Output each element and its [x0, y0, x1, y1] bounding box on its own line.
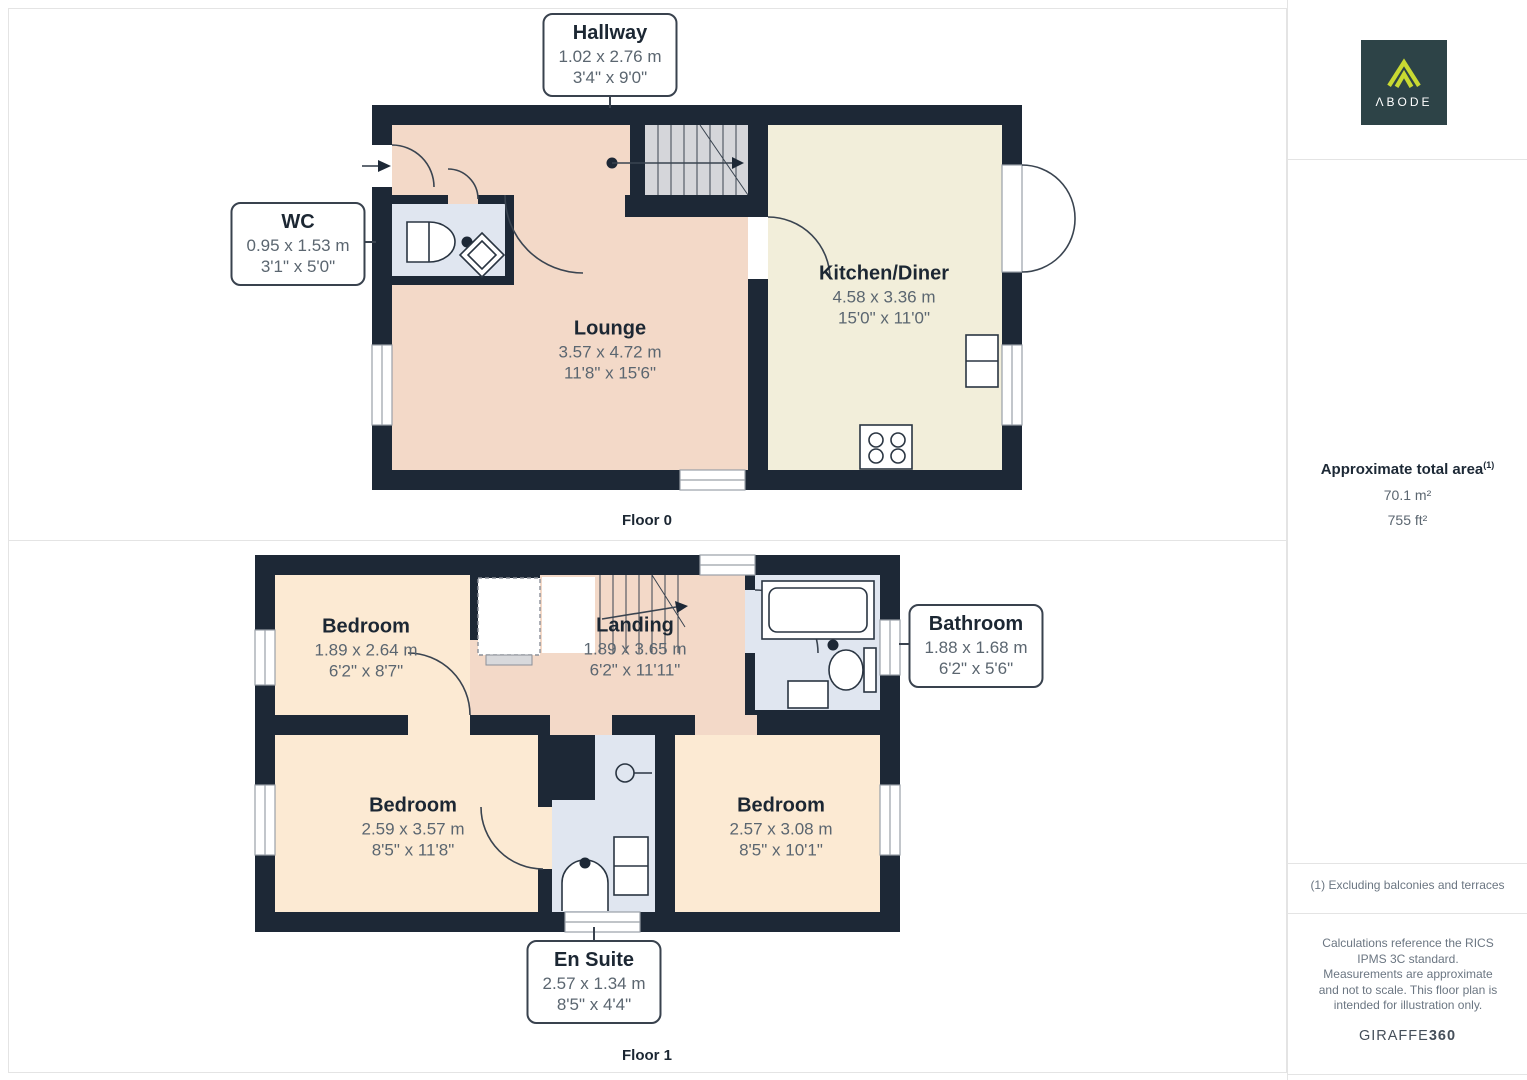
giraffe-360-text: 360 — [1429, 1028, 1456, 1044]
bathroom-sink-icon — [788, 681, 828, 708]
room-name: En Suite — [542, 948, 645, 973]
room-name: Hallway — [558, 21, 661, 46]
total-area-superscript: (1) — [1483, 460, 1494, 470]
landing-top-window — [700, 555, 755, 575]
kitchen-window-right — [1002, 345, 1022, 425]
closet — [478, 578, 540, 665]
floor0-label: Floor 0 — [622, 512, 672, 529]
sidebar-divider-4 — [1288, 1074, 1527, 1075]
room-name: Bedroom — [314, 614, 417, 639]
floor-divider-line — [8, 540, 1286, 541]
room-dim-imperial: 15'0" x 11'0" — [819, 308, 949, 329]
room-dim-imperial: 6'2" x 5'6" — [924, 658, 1027, 679]
room-dim-metric: 2.59 x 3.57 m — [361, 818, 464, 839]
floor1-plan-drawing — [240, 545, 920, 945]
disclaimer-text: Calculations reference the RICS IPMS 3C … — [1318, 936, 1498, 1014]
room-dim-metric: 3.57 x 4.72 m — [558, 341, 661, 362]
room-name: Bedroom — [729, 793, 832, 818]
room-dim-metric: 1.88 x 1.68 m — [924, 637, 1027, 658]
room-dim-metric: 1.89 x 2.64 m — [314, 639, 417, 660]
total-area-block: Approximate total area(1) 70.1 m² 755 ft… — [1288, 460, 1527, 528]
kitchen-sink-icon — [966, 335, 998, 387]
abode-logo: ΛBODE — [1361, 40, 1447, 125]
excluding-footnote: (1) Excluding balconies and terraces — [1288, 878, 1527, 892]
room-name: WC — [246, 210, 349, 235]
bedroom-topleft-label: Bedroom 1.89 x 2.64 m 6'2" x 8'7" — [314, 614, 417, 682]
abode-chevron-icon — [1384, 57, 1424, 89]
kitchen-patio-doors — [1002, 165, 1075, 272]
room-dim-imperial: 3'1" x 5'0" — [246, 256, 349, 277]
hallway-leader-line — [609, 95, 611, 108]
ensuite-sink-icon — [614, 837, 648, 895]
total-area-title: Approximate total area(1) — [1288, 460, 1527, 478]
room-name: Bathroom — [924, 612, 1027, 637]
bedroom-right-window — [880, 785, 900, 855]
room-dim-metric: 4.58 x 3.36 m — [819, 286, 949, 307]
room-dim-imperial: 8'5" x 4'4" — [542, 994, 645, 1015]
floor0-plan-drawing — [360, 95, 1080, 505]
bedroom-mid-window — [255, 785, 275, 855]
floorplan-page: { "branding": { "logo_text": "ΛBODE" }, … — [0, 0, 1527, 1080]
lounge-window-left — [372, 345, 392, 425]
bathroom-window — [880, 620, 900, 675]
sidebar-divider-2 — [1288, 863, 1527, 864]
hallway-callout: Hallway 1.02 x 2.76 m 3'4" x 9'0" — [542, 13, 677, 97]
sidebar-divider-3 — [1288, 913, 1527, 914]
room-dim-metric: 1.02 x 2.76 m — [558, 46, 661, 67]
room-dim-metric: 2.57 x 1.34 m — [542, 973, 645, 994]
bedroom-right-label: Bedroom 2.57 x 3.08 m 8'5" x 10'1" — [729, 793, 832, 861]
wc-callout: WC 0.95 x 1.53 m 3'1" x 5'0" — [230, 202, 365, 286]
sidebar-left-border — [1287, 0, 1288, 1080]
landing-label: Landing 1.89 x 3.65 m 6'2" x 11'11" — [583, 613, 686, 681]
ensuite-leader-line — [593, 927, 595, 941]
kitchen-diner-label: Kitchen/Diner 4.58 x 3.36 m 15'0" x 11'0… — [819, 261, 949, 329]
room-dim-imperial: 3'4" x 9'0" — [558, 67, 661, 88]
total-area-ft2: 755 ft² — [1288, 512, 1527, 528]
room-name: Kitchen/Diner — [819, 261, 949, 286]
bathroom-toilet-icon — [829, 648, 876, 692]
bathtub-icon — [762, 581, 874, 639]
room-dim-imperial: 8'5" x 10'1" — [729, 840, 832, 861]
ensuite-toilet-icon — [562, 858, 608, 912]
abode-logo-text: ΛBODE — [1375, 95, 1432, 109]
room-dim-imperial: 8'5" x 11'8" — [361, 840, 464, 861]
room-dim-imperial: 11'8" x 15'6" — [558, 363, 661, 384]
room-dim-metric: 1.89 x 3.65 m — [583, 638, 686, 659]
room-dim-imperial: 6'2" x 11'11" — [583, 660, 686, 681]
ensuite-callout: En Suite 2.57 x 1.34 m 8'5" x 4'4" — [526, 940, 661, 1024]
bathroom-callout: Bathroom 1.88 x 1.68 m 6'2" x 5'6" — [908, 604, 1043, 688]
lounge-window-bottom — [680, 470, 745, 490]
room-name: Landing — [583, 613, 686, 638]
sidebar-divider-1 — [1288, 159, 1527, 160]
giraffe360-brand: GIRAFFE360 — [1288, 1028, 1527, 1044]
room-name: Lounge — [558, 316, 661, 341]
total-area-m2: 70.1 m² — [1288, 487, 1527, 503]
room-dim-metric: 2.57 x 3.08 m — [729, 818, 832, 839]
room-name: Bedroom — [361, 793, 464, 818]
bedroom-tl-window — [255, 630, 275, 685]
bedroom-middle-label: Bedroom 2.59 x 3.57 m 8'5" x 11'8" — [361, 793, 464, 861]
giraffe-text: GIRAFFE — [1359, 1028, 1429, 1044]
room-dim-imperial: 6'2" x 8'7" — [314, 661, 417, 682]
hob-icon — [860, 425, 912, 469]
room-dim-metric: 0.95 x 1.53 m — [246, 235, 349, 256]
floor1-label: Floor 1 — [622, 1047, 672, 1064]
ensuite-window — [565, 912, 640, 932]
lounge-label: Lounge 3.57 x 4.72 m 11'8" x 15'6" — [558, 316, 661, 384]
total-area-title-text: Approximate total area — [1321, 461, 1484, 478]
